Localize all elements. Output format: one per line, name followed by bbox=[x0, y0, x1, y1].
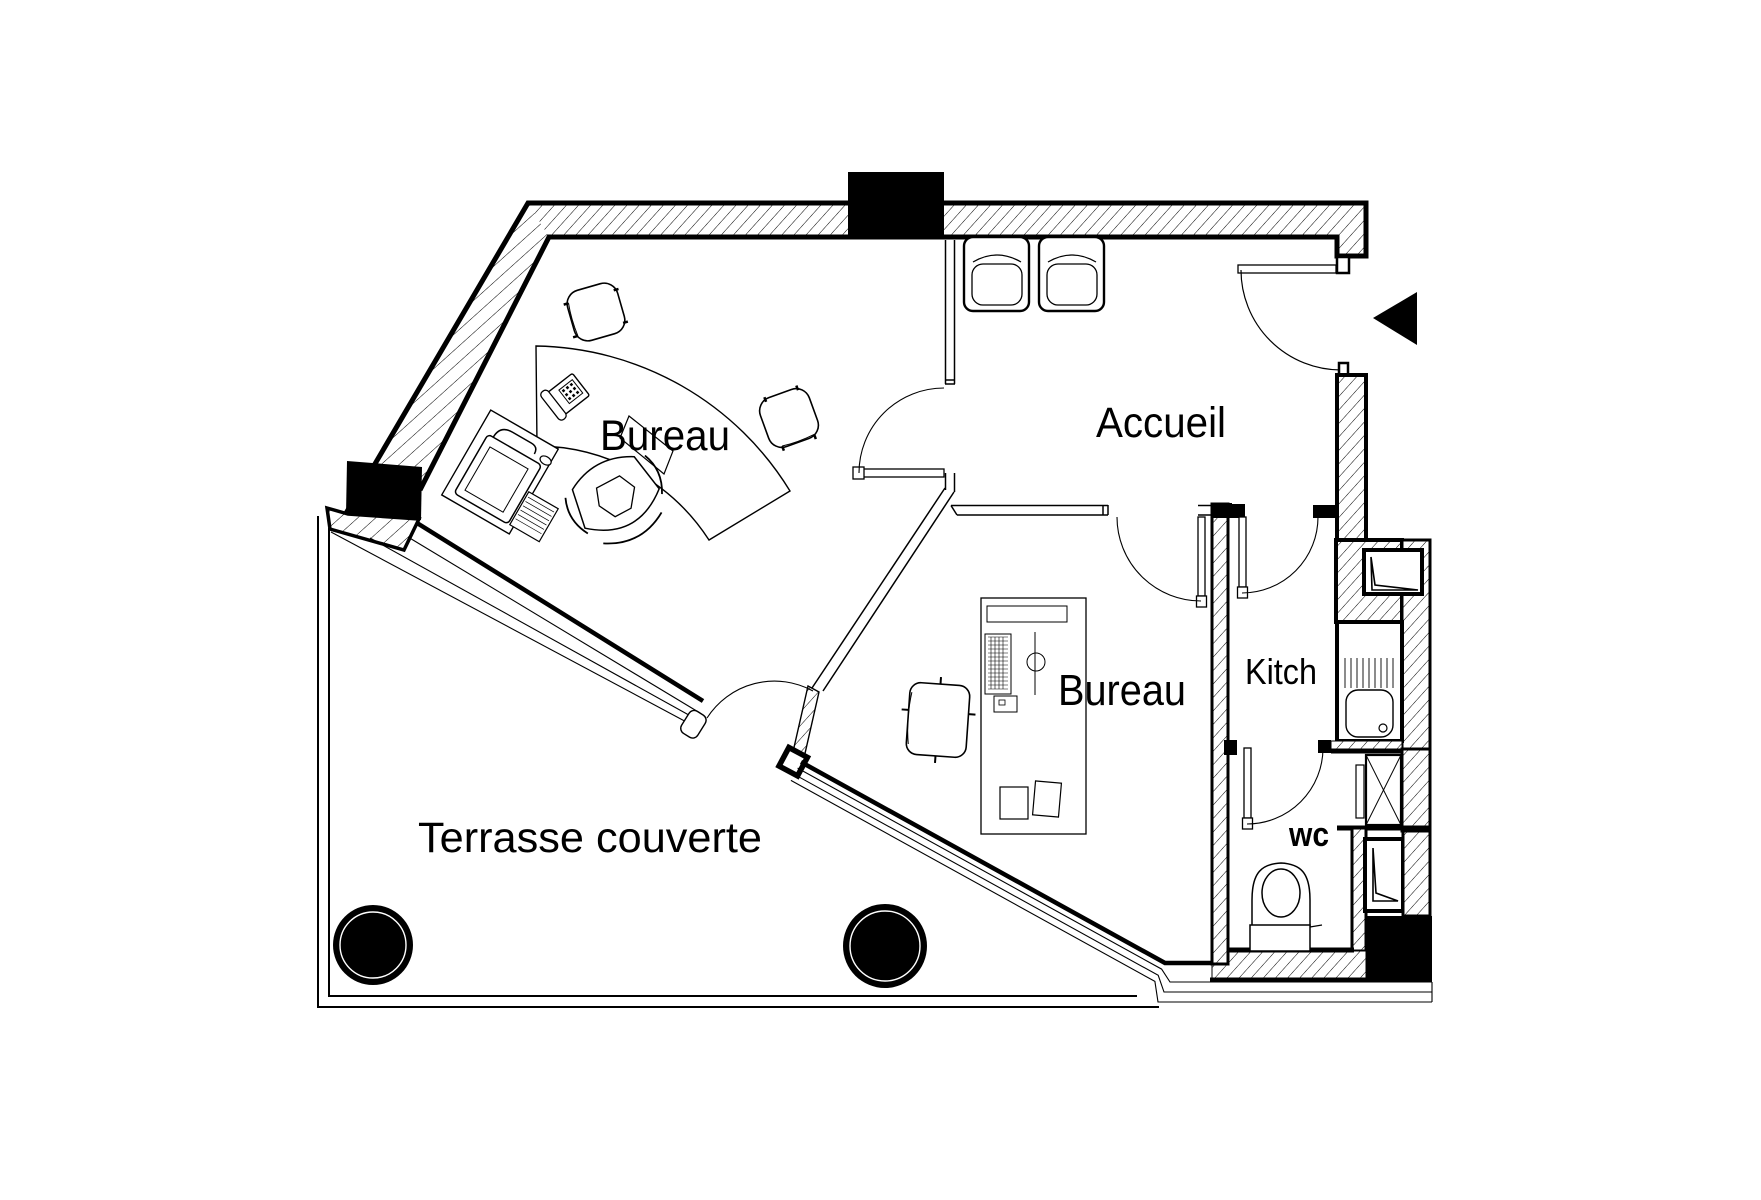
svg-text:Bureau: Bureau bbox=[600, 412, 730, 460]
svg-text:Kitch: Kitch bbox=[1245, 651, 1317, 692]
svg-text:wc: wc bbox=[1288, 816, 1329, 854]
svg-text:Terrasse couverte: Terrasse couverte bbox=[418, 814, 762, 862]
svg-text:Accueil: Accueil bbox=[1096, 399, 1226, 447]
svg-text:Bureau: Bureau bbox=[1058, 666, 1186, 715]
